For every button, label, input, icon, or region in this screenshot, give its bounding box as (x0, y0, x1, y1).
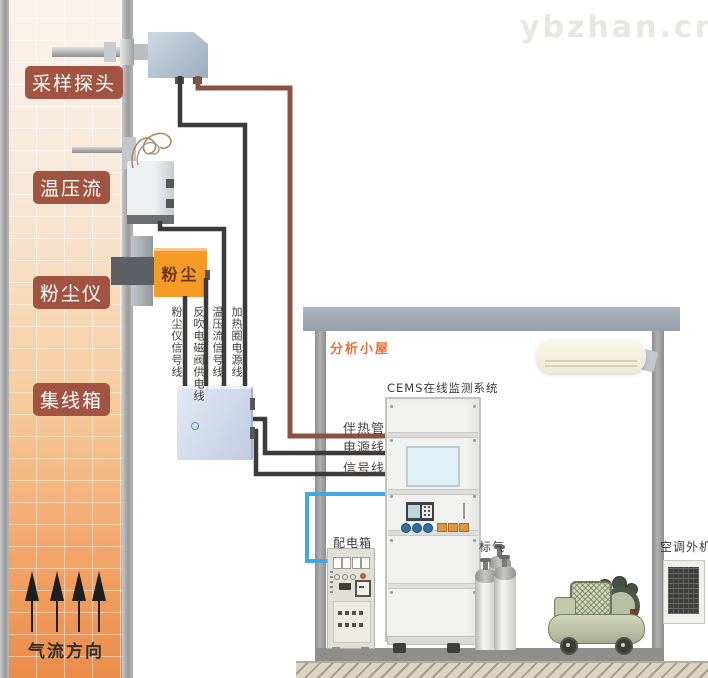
label-ac-outdoor: 空调外机 (660, 538, 708, 555)
pbox-slot-row-1 (338, 611, 366, 615)
label-cems-system: CEMS在线监测系统 (387, 380, 499, 396)
cems-system-diagram: 粉尘 (0, 0, 708, 678)
airflow-arrow (92, 571, 106, 632)
label-power-line: 电源线 (343, 437, 385, 456)
cabinet-foot-left (393, 643, 406, 653)
airflow-arrows (25, 571, 106, 632)
level-indicator (463, 503, 465, 519)
pbox-knob-orange (360, 573, 366, 579)
button-orange-3 (459, 523, 469, 532)
label-airflow-direction: 气流方向 (28, 637, 104, 662)
cylinder-shoulder (494, 566, 516, 580)
airflow-arrow (25, 571, 39, 632)
air-compressor (546, 575, 646, 653)
pbox-window-4 (361, 557, 370, 569)
cylinder-valve-knob (499, 555, 510, 559)
airflow-arrow (50, 571, 64, 632)
pbox-window-1 (333, 557, 342, 569)
cylinder-valve-knob (480, 558, 491, 562)
pbox-side-vents (330, 569, 333, 593)
label-temp-pressure-flow: 温压流 (33, 171, 110, 204)
pbox-window-3 (352, 557, 361, 569)
pbox-slot-row-2 (338, 623, 366, 627)
compressor-wheel-left (560, 637, 578, 655)
cylinder-valve (502, 558, 507, 567)
gas-cylinder-right (494, 566, 516, 650)
watermark: ybzhan.cn (520, 10, 708, 45)
analyzer-screen (408, 505, 420, 518)
pbox-foot-left (332, 647, 340, 653)
label-heat-traced-line: 伴热管 (343, 418, 385, 437)
analyzer-keypad (422, 505, 432, 518)
cems-cabinet (385, 397, 481, 642)
pbox-window-2 (342, 557, 351, 569)
junction-box-handle (191, 422, 199, 430)
cabinet-foot-right (447, 643, 460, 653)
wire-heat-traced-line (198, 76, 390, 436)
junction-box-device (177, 386, 253, 460)
power-distribution-box (327, 548, 375, 649)
label-standard-gas: 标气 (479, 538, 505, 555)
airflow-arrow (72, 571, 86, 632)
label-dust-signal-wire: 粉尘仪信号线 (168, 306, 184, 378)
label-sampling-probe: 采样探头 (25, 66, 123, 99)
pbox-lower-panel (333, 601, 371, 643)
compressor-wheel-right (615, 637, 633, 655)
button-orange-1 (437, 523, 447, 532)
cabinet-screen-window (406, 446, 460, 487)
label-tpf-signal-wire: 温压流信号线 (209, 306, 225, 378)
label-signal-line: 信号线 (343, 458, 385, 477)
ac-outdoor-grille (668, 567, 699, 614)
knob-blue-2 (412, 523, 422, 533)
label-junction-box: 集线箱 (33, 383, 110, 416)
ac-indoor-unit (536, 339, 646, 373)
analyzer-bezel (406, 502, 434, 521)
junction-box-hinge-2 (250, 427, 255, 439)
knob-blue-3 (423, 523, 433, 533)
pbox-plug-icon (339, 583, 351, 590)
ac-indoor-vent (545, 358, 637, 367)
label-analysis-shack: 分析小屋 (330, 338, 390, 357)
junction-box-hinge-1 (250, 398, 255, 410)
label-heating-coil-power-wire: 加热圈电源线 (228, 306, 244, 378)
cylinder-valve (483, 561, 488, 570)
pbox-knob-2 (342, 574, 348, 580)
label-power-box: 配电箱 (333, 534, 372, 551)
pbox-meter (355, 580, 371, 597)
pbox-knob-1 (334, 574, 340, 580)
label-dust-meter: 粉尘仪 (33, 276, 110, 309)
button-orange-2 (448, 523, 458, 532)
knob-blue-1 (401, 523, 411, 533)
compressor-belt-guard (570, 581, 612, 617)
ac-outdoor-unit (663, 560, 705, 624)
pbox-foot-right (361, 647, 369, 653)
label-blowback-power-wire: 反吹电磁阀供电线 (190, 306, 206, 402)
